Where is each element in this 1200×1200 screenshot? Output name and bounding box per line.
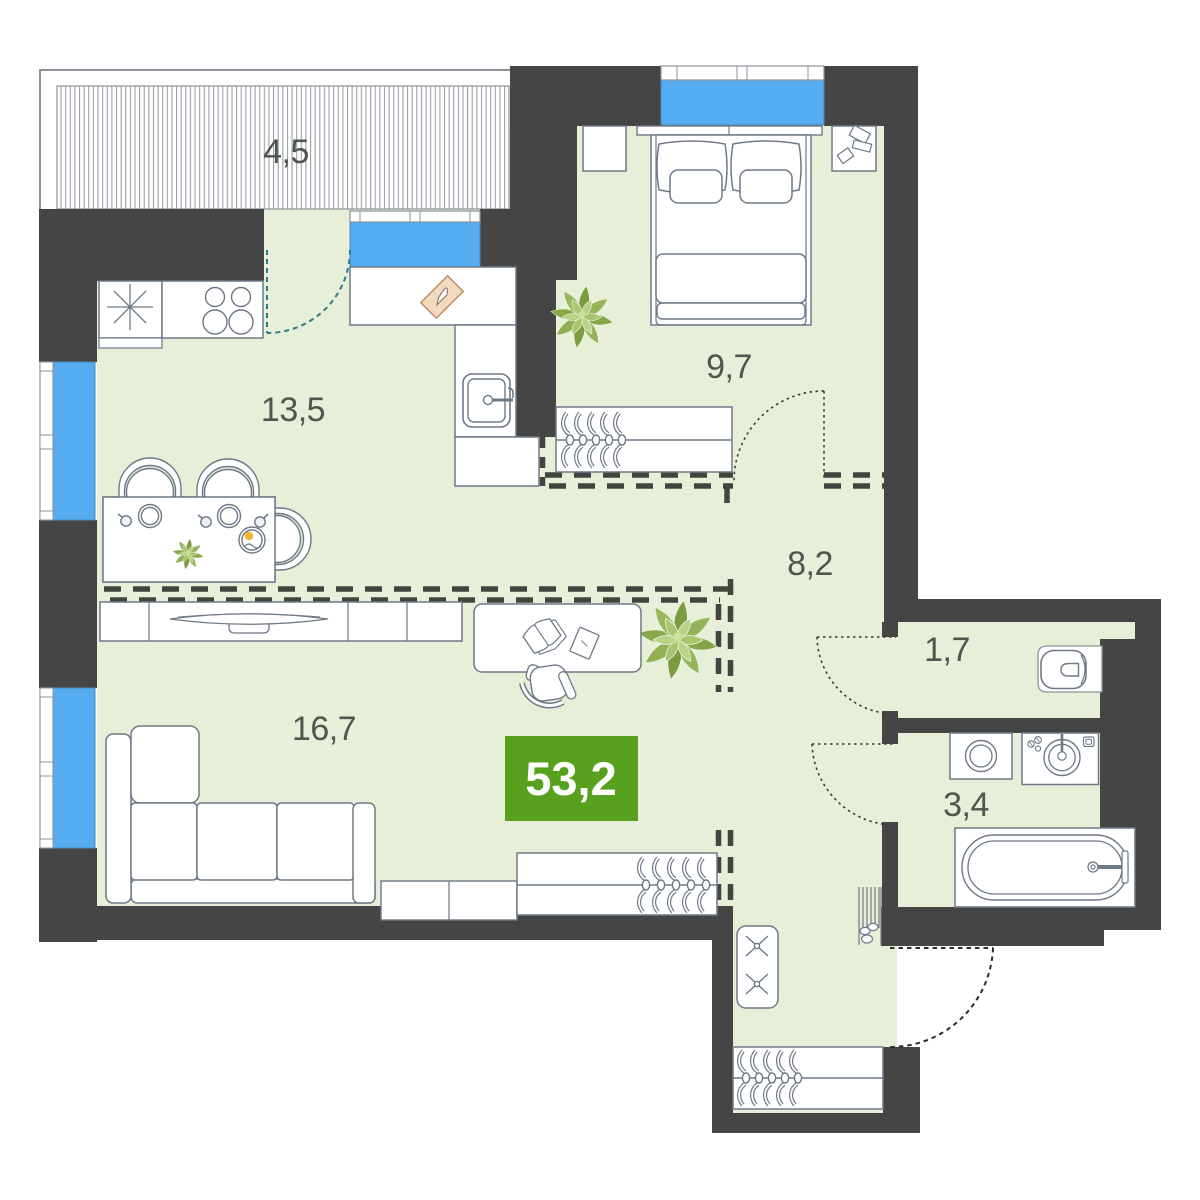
svg-text:13,5: 13,5 xyxy=(261,391,325,429)
svg-text:3,4: 3,4 xyxy=(943,786,989,824)
svg-text:9,7: 9,7 xyxy=(706,348,752,386)
svg-text:8,2: 8,2 xyxy=(787,545,833,583)
svg-text:16,7: 16,7 xyxy=(292,710,356,748)
svg-text:1,7: 1,7 xyxy=(924,631,970,669)
svg-text:53,2: 53,2 xyxy=(525,752,616,805)
svg-text:4,5: 4,5 xyxy=(263,133,309,171)
